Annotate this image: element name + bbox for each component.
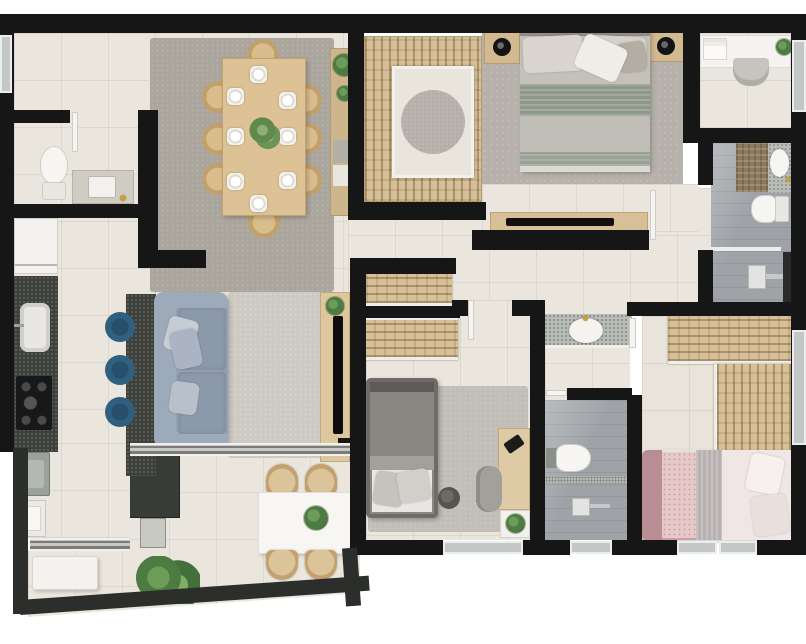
floor-plan [0,0,806,644]
wall [348,202,486,220]
plate [279,172,296,189]
shower-handle [766,274,784,279]
gold-faucet-icon [120,195,126,201]
shelf-plant [506,514,525,533]
mini-fridge [140,518,166,548]
bed-footer-sheet [520,166,650,172]
plate [250,195,267,212]
wall [4,14,798,33]
pouf [438,487,460,509]
gas-cooktop [16,376,52,430]
plate [250,66,267,83]
master-tv [506,218,614,226]
window [443,541,523,554]
bedroom2-single-bed [366,378,438,518]
wall [348,26,364,218]
door-leaf-bathroom2 [546,390,567,396]
office-chair [733,58,769,86]
wall [530,300,545,545]
bar-stool [105,312,135,342]
door-leaf-powder-room [72,112,78,152]
nightstand-lamp [493,38,511,56]
balcony-bench [32,556,98,590]
linen-closet [364,318,458,360]
wall [138,110,158,268]
master-toilet-bowl [751,195,777,223]
refrigerator-door-line [15,264,57,266]
wall [612,540,677,555]
nightstand-lamp [657,37,675,55]
wall [350,258,366,545]
balcony-chair [305,464,337,494]
sage-knit-blanket [520,84,650,116]
door-leaf-bedroom3 [629,318,636,348]
wall [698,128,791,143]
wall [352,306,460,318]
plate [279,92,296,109]
bedroom2-pillow [395,467,432,504]
wall [698,143,713,185]
tv [333,316,343,434]
window [792,40,806,112]
desk-chair [476,466,502,512]
gold-faucet-icon [583,316,588,321]
wall [4,110,70,123]
wall [683,26,700,143]
toilet-tank [42,182,66,200]
wall [627,302,806,316]
toilet-bowl [40,146,68,184]
bathroom2-handle [590,504,610,508]
window [677,541,717,554]
wall [350,540,443,555]
alcove-basin [569,318,603,343]
plate [227,173,244,190]
master-basin [770,149,789,177]
shower-glass-panel [783,252,791,305]
bathroom2-toilet-bowl [556,444,591,472]
balcony-railing-left [13,448,28,614]
bedroom3-knit-blanket [696,450,724,540]
bedroom3-bed [642,450,791,540]
bathroom2-drain [572,498,590,516]
bar-stool [105,355,135,385]
bathroom2-threshold [545,476,630,483]
bar-stool [105,397,135,427]
bedroom3-wardrobe-top [668,316,791,364]
plate [227,128,244,145]
centerpiece-plant [248,114,280,150]
wall [757,540,806,555]
wall [138,250,206,268]
balcony-chair [266,464,298,494]
plate [227,88,244,105]
shower-drain [748,265,766,289]
shower-threshold [711,247,781,251]
office-plant [776,39,792,55]
balcony-table-plant [304,506,328,530]
master-bed [520,28,650,172]
door-leaf-master-suite [650,190,656,240]
wall [523,540,570,555]
bedroom3-headboard [642,450,662,540]
powder-sink [88,176,116,198]
floor-bathroom2 [545,400,630,540]
bed-duvet [520,116,650,156]
wall [0,204,152,218]
bedroom3-floral-pillows [662,452,698,538]
tv-panel-plant [326,297,344,315]
sage-knit-trim [520,152,650,166]
sliding-door-track-laundry-balcony [30,538,130,551]
kitchen-sink [20,303,50,352]
window [719,541,757,554]
closet-round-rug [401,90,465,154]
bedroom3-pillow [749,493,790,538]
living-rug [228,292,330,458]
window [570,541,612,554]
master-toilet-tank [775,196,789,222]
door-leaf-bedroom2 [468,300,474,340]
wall [350,258,456,274]
bedroom2-headboard [370,382,434,392]
window [0,35,12,93]
window [792,330,806,445]
bedroom3-wardrobe-right [714,364,791,464]
throw-pillow [168,380,200,416]
office-books [703,38,727,60]
sliding-door-track-living-balcony [130,443,350,456]
wall [627,395,642,545]
wall [567,388,632,400]
linen-closet [366,274,452,306]
wall [472,230,649,250]
wall [452,300,468,316]
bed-pillow [522,34,584,73]
plate [279,128,296,145]
bronze-tile-panel [736,143,768,192]
